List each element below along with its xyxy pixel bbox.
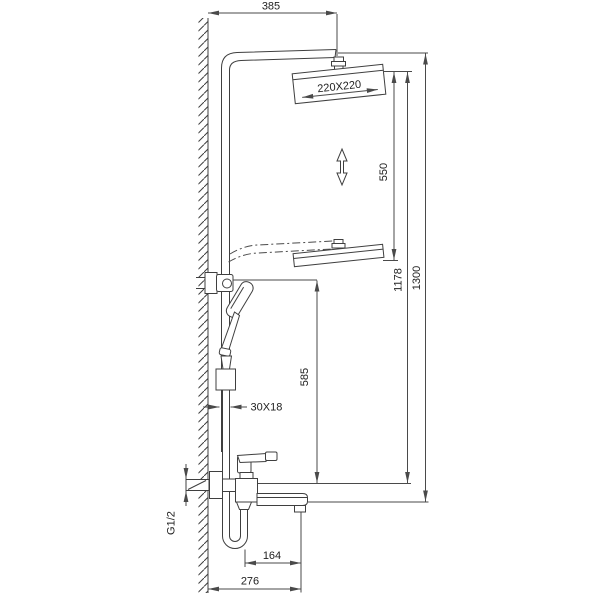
dim-label-585: 585 xyxy=(299,368,311,386)
dimension-550: 550 xyxy=(378,72,412,261)
hose-loop-inner xyxy=(230,536,241,542)
dim-label-g12: G1/2 xyxy=(166,511,178,535)
dim-label-1178: 1178 xyxy=(393,268,405,292)
height-adjust-double-arrow-icon xyxy=(337,149,347,185)
hose-nut-lower xyxy=(237,502,252,510)
overhead-shower-upper: 220X220 xyxy=(292,64,386,103)
dim-label-385: 385 xyxy=(262,1,280,13)
dimension-276: 276 xyxy=(208,576,301,590)
wall-hatching xyxy=(199,18,209,593)
connector-flange xyxy=(332,62,346,67)
dimension-1300: 1300 xyxy=(308,53,429,502)
connector-nut-top xyxy=(334,57,344,62)
dimension-30x18: 30X18 xyxy=(203,402,282,414)
spout xyxy=(257,494,308,506)
dim-label-1300: 1300 xyxy=(411,266,423,290)
wall xyxy=(199,18,209,593)
hose-nut-upper xyxy=(221,356,232,369)
dimension-1178: 1178 xyxy=(258,72,411,484)
hand-shower-handle xyxy=(222,312,240,351)
pole-slider-block xyxy=(216,369,236,390)
shower-technical-drawing: 220X220 xyxy=(0,0,600,600)
mixer-escutcheon xyxy=(210,472,223,499)
hose-loop-outer xyxy=(223,536,248,548)
dim-label-30x18: 30X18 xyxy=(251,402,283,414)
bracket-wall-plate xyxy=(205,273,217,294)
spout-aerator xyxy=(295,506,306,513)
mixer-lever xyxy=(238,454,267,463)
shower-technical-drawing-page: 220X220 xyxy=(0,0,600,600)
arm-end-cap xyxy=(335,50,336,58)
overhead-shower-lower-position xyxy=(293,240,384,267)
dim-label-550: 550 xyxy=(378,163,390,181)
dim-label-276: 276 xyxy=(241,576,259,588)
dimension-g12: G1/2 xyxy=(166,464,187,535)
mixer-lever-tip xyxy=(266,452,278,461)
lower-connector-flange xyxy=(332,244,345,249)
dim-label-164: 164 xyxy=(263,550,281,562)
dimension-385: 385 xyxy=(208,1,337,57)
bracket-knob xyxy=(223,279,232,288)
mixer-body xyxy=(236,479,258,503)
mixer-wall-stub xyxy=(223,479,236,492)
